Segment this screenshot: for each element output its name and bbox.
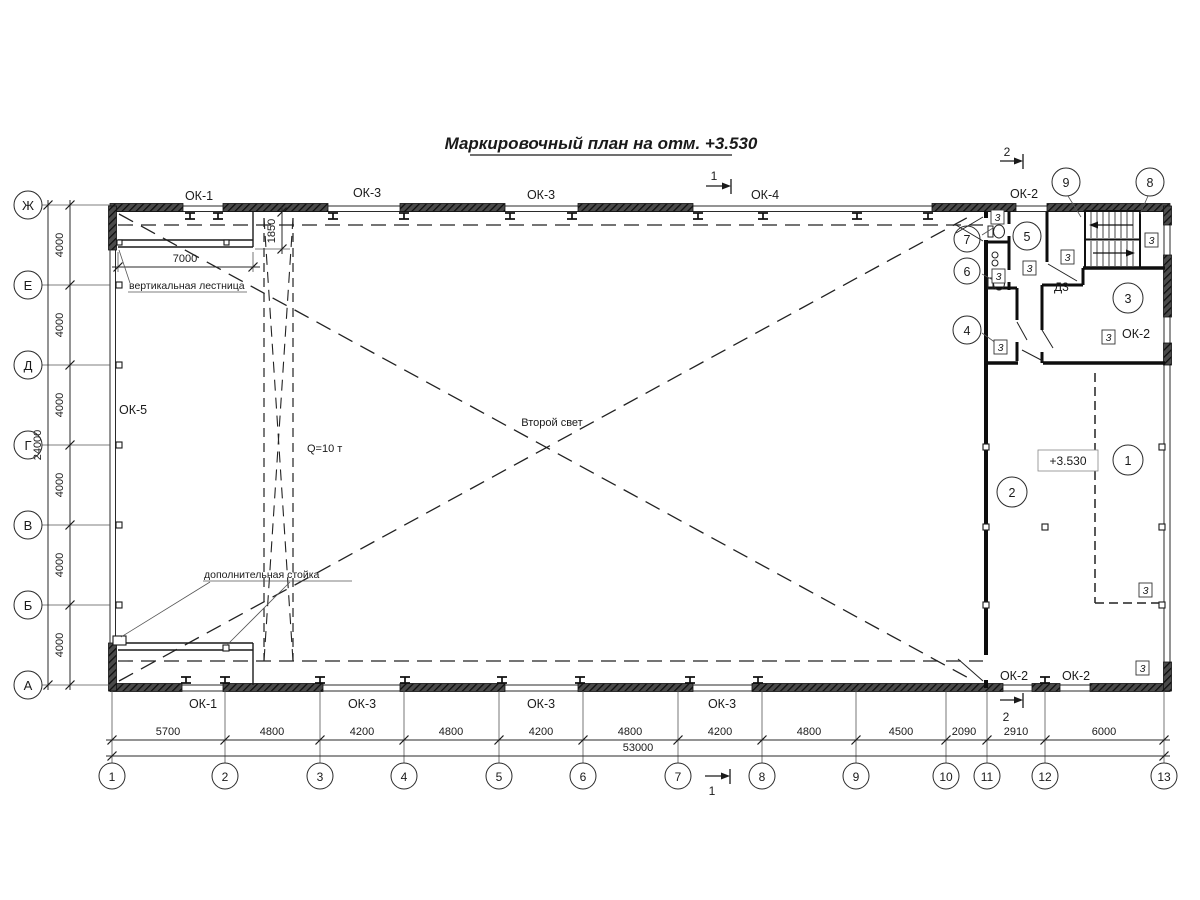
axis-col-0: 1	[109, 770, 116, 784]
axis-col-11: 12	[1038, 770, 1052, 784]
room-1: 1	[1125, 454, 1132, 468]
additional-post-label: дополнительная стойка	[204, 569, 320, 581]
tag-3: 3	[996, 271, 1002, 283]
axis-col-8: 9	[853, 770, 860, 784]
dim-col-6: 4200	[708, 726, 732, 738]
axis-col-circles: 1 2 3 4 5 6 7 8 9 10 11 12 13	[99, 763, 1177, 789]
dim-ladder-band: 1850	[266, 219, 278, 243]
window-label-bottom-ok3b: ОК-3	[527, 697, 555, 711]
tag-3: 3	[1149, 235, 1155, 247]
dim-col-total: 53000	[623, 742, 654, 754]
window-label-top-ok3b: ОК-3	[527, 188, 555, 202]
dim-col-11: 6000	[1092, 726, 1116, 738]
dim-row-4: 4000	[54, 553, 66, 577]
tag-3: 3	[1065, 252, 1071, 264]
room-2: 2	[1009, 486, 1016, 500]
dim-col-9: 2090	[952, 726, 976, 738]
floor-plan-canvas: 4000 4000 4000 4000 4000 4000 24000 5700…	[0, 0, 1200, 900]
section-2-bottom: 2	[1003, 710, 1010, 724]
tag-3: 3	[1140, 663, 1146, 675]
axis-col-5: 6	[580, 770, 587, 784]
outer-walls	[110, 206, 1170, 691]
tag-3: 3	[1143, 585, 1149, 597]
axis-row-5: Б	[24, 598, 33, 613]
dim-row-0: 4000	[54, 233, 66, 257]
axis-col-2: 3	[317, 770, 324, 784]
axis-col-3: 4	[401, 770, 408, 784]
window-label-left-ok5: ОК-5	[119, 403, 147, 417]
window-label-top-ok4: ОК-4	[751, 188, 779, 202]
axis-row-6: А	[24, 678, 33, 693]
window-label-bottom-ok2a: ОК-2	[1000, 669, 1028, 683]
window-label-right-ok2: ОК-2	[1122, 327, 1150, 341]
window-label-bottom-ok3a: ОК-3	[348, 697, 376, 711]
column-squares	[113, 240, 1165, 651]
window-label-bottom-ok3c: ОК-3	[708, 697, 736, 711]
room-8: 8	[1147, 176, 1154, 190]
axis-row-2: Д	[24, 358, 33, 373]
axis-row-3: Г	[24, 438, 31, 453]
window-label-top-ok2: ОК-2	[1010, 187, 1038, 201]
room-4: 4	[964, 324, 971, 338]
text-labels: Второй свет Q=10 т Д3 +3.530 вертикальна…	[119, 250, 1098, 645]
axis-col-12: 13	[1157, 770, 1171, 784]
tag-3: 3	[998, 342, 1004, 354]
window-labels: ОК-1 ОК-3 ОК-3 ОК-4 ОК-2 ОК-1 ОК-3 ОК-3 …	[119, 186, 1150, 711]
axis-col-1: 2	[222, 770, 229, 784]
room-3: 3	[1125, 292, 1132, 306]
axis-row-0: Ж	[22, 198, 34, 213]
tag-3: 3	[1106, 332, 1112, 344]
dashed-opening-lines	[118, 214, 1160, 681]
section-2-top: 2	[1004, 145, 1011, 159]
dim-row-2: 4000	[54, 393, 66, 417]
level-mark: +3.530	[1049, 454, 1086, 468]
axis-col-9: 10	[939, 770, 953, 784]
dim-col-1: 4800	[260, 726, 284, 738]
tag-3: 3	[1027, 263, 1033, 275]
window-label-top-ok1: ОК-1	[185, 189, 213, 203]
second-light-label: Второй свет	[521, 417, 582, 429]
dim-col-8: 4500	[889, 726, 913, 738]
section-1-bottom: 1	[709, 784, 716, 798]
dim-col-4: 4200	[529, 726, 553, 738]
dimension-bottom: 5700 4800 4200 4800 4200 4800 4200 4800 …	[106, 691, 1170, 763]
title-text: Маркировочный план на отм. +3.530	[445, 134, 758, 153]
crane-capacity-label: Q=10 т	[307, 443, 342, 455]
axis-col-6: 7	[675, 770, 682, 784]
door-d3-label: Д3	[1054, 280, 1069, 294]
drawing-sheet: 4000 4000 4000 4000 4000 4000 24000 5700…	[0, 0, 1200, 900]
drawing-title: Маркировочный план на отм. +3.530	[445, 134, 758, 155]
dim-row-1: 4000	[54, 313, 66, 337]
dim-col-5: 4800	[618, 726, 642, 738]
dim-col-2: 4200	[350, 726, 374, 738]
tag-3: 3	[995, 212, 1001, 224]
section-1-top: 1	[711, 169, 718, 183]
staircase	[1085, 211, 1140, 268]
dim-row-5: 4000	[54, 633, 66, 657]
vertical-ladder-label: вертикальная лестница	[129, 280, 245, 292]
dim-col-0: 5700	[156, 726, 180, 738]
axis-col-10: 11	[981, 770, 994, 784]
window-label-bottom-ok2b: ОК-2	[1062, 669, 1090, 683]
dim-col-7: 4800	[797, 726, 821, 738]
axis-col-4: 5	[496, 770, 503, 784]
room-7: 7	[964, 233, 971, 247]
dim-platform: 7000	[173, 253, 197, 265]
window-label-top-ok3a: ОК-3	[353, 186, 381, 200]
room-6: 6	[964, 265, 971, 279]
room-9: 9	[1063, 176, 1070, 190]
room-5: 5	[1024, 230, 1031, 244]
axis-col-7: 8	[759, 770, 766, 784]
axis-row-4: В	[24, 518, 33, 533]
window-label-bottom-ok1: ОК-1	[189, 697, 217, 711]
dimension-left: 4000 4000 4000 4000 4000 4000 24000	[32, 200, 110, 690]
axis-row-1: Е	[24, 278, 33, 293]
section-marks: 1 1 2 2	[705, 145, 1023, 798]
dim-col-10: 2910	[1004, 726, 1028, 738]
dim-row-3: 4000	[54, 473, 66, 497]
dim-col-3: 4800	[439, 726, 463, 738]
